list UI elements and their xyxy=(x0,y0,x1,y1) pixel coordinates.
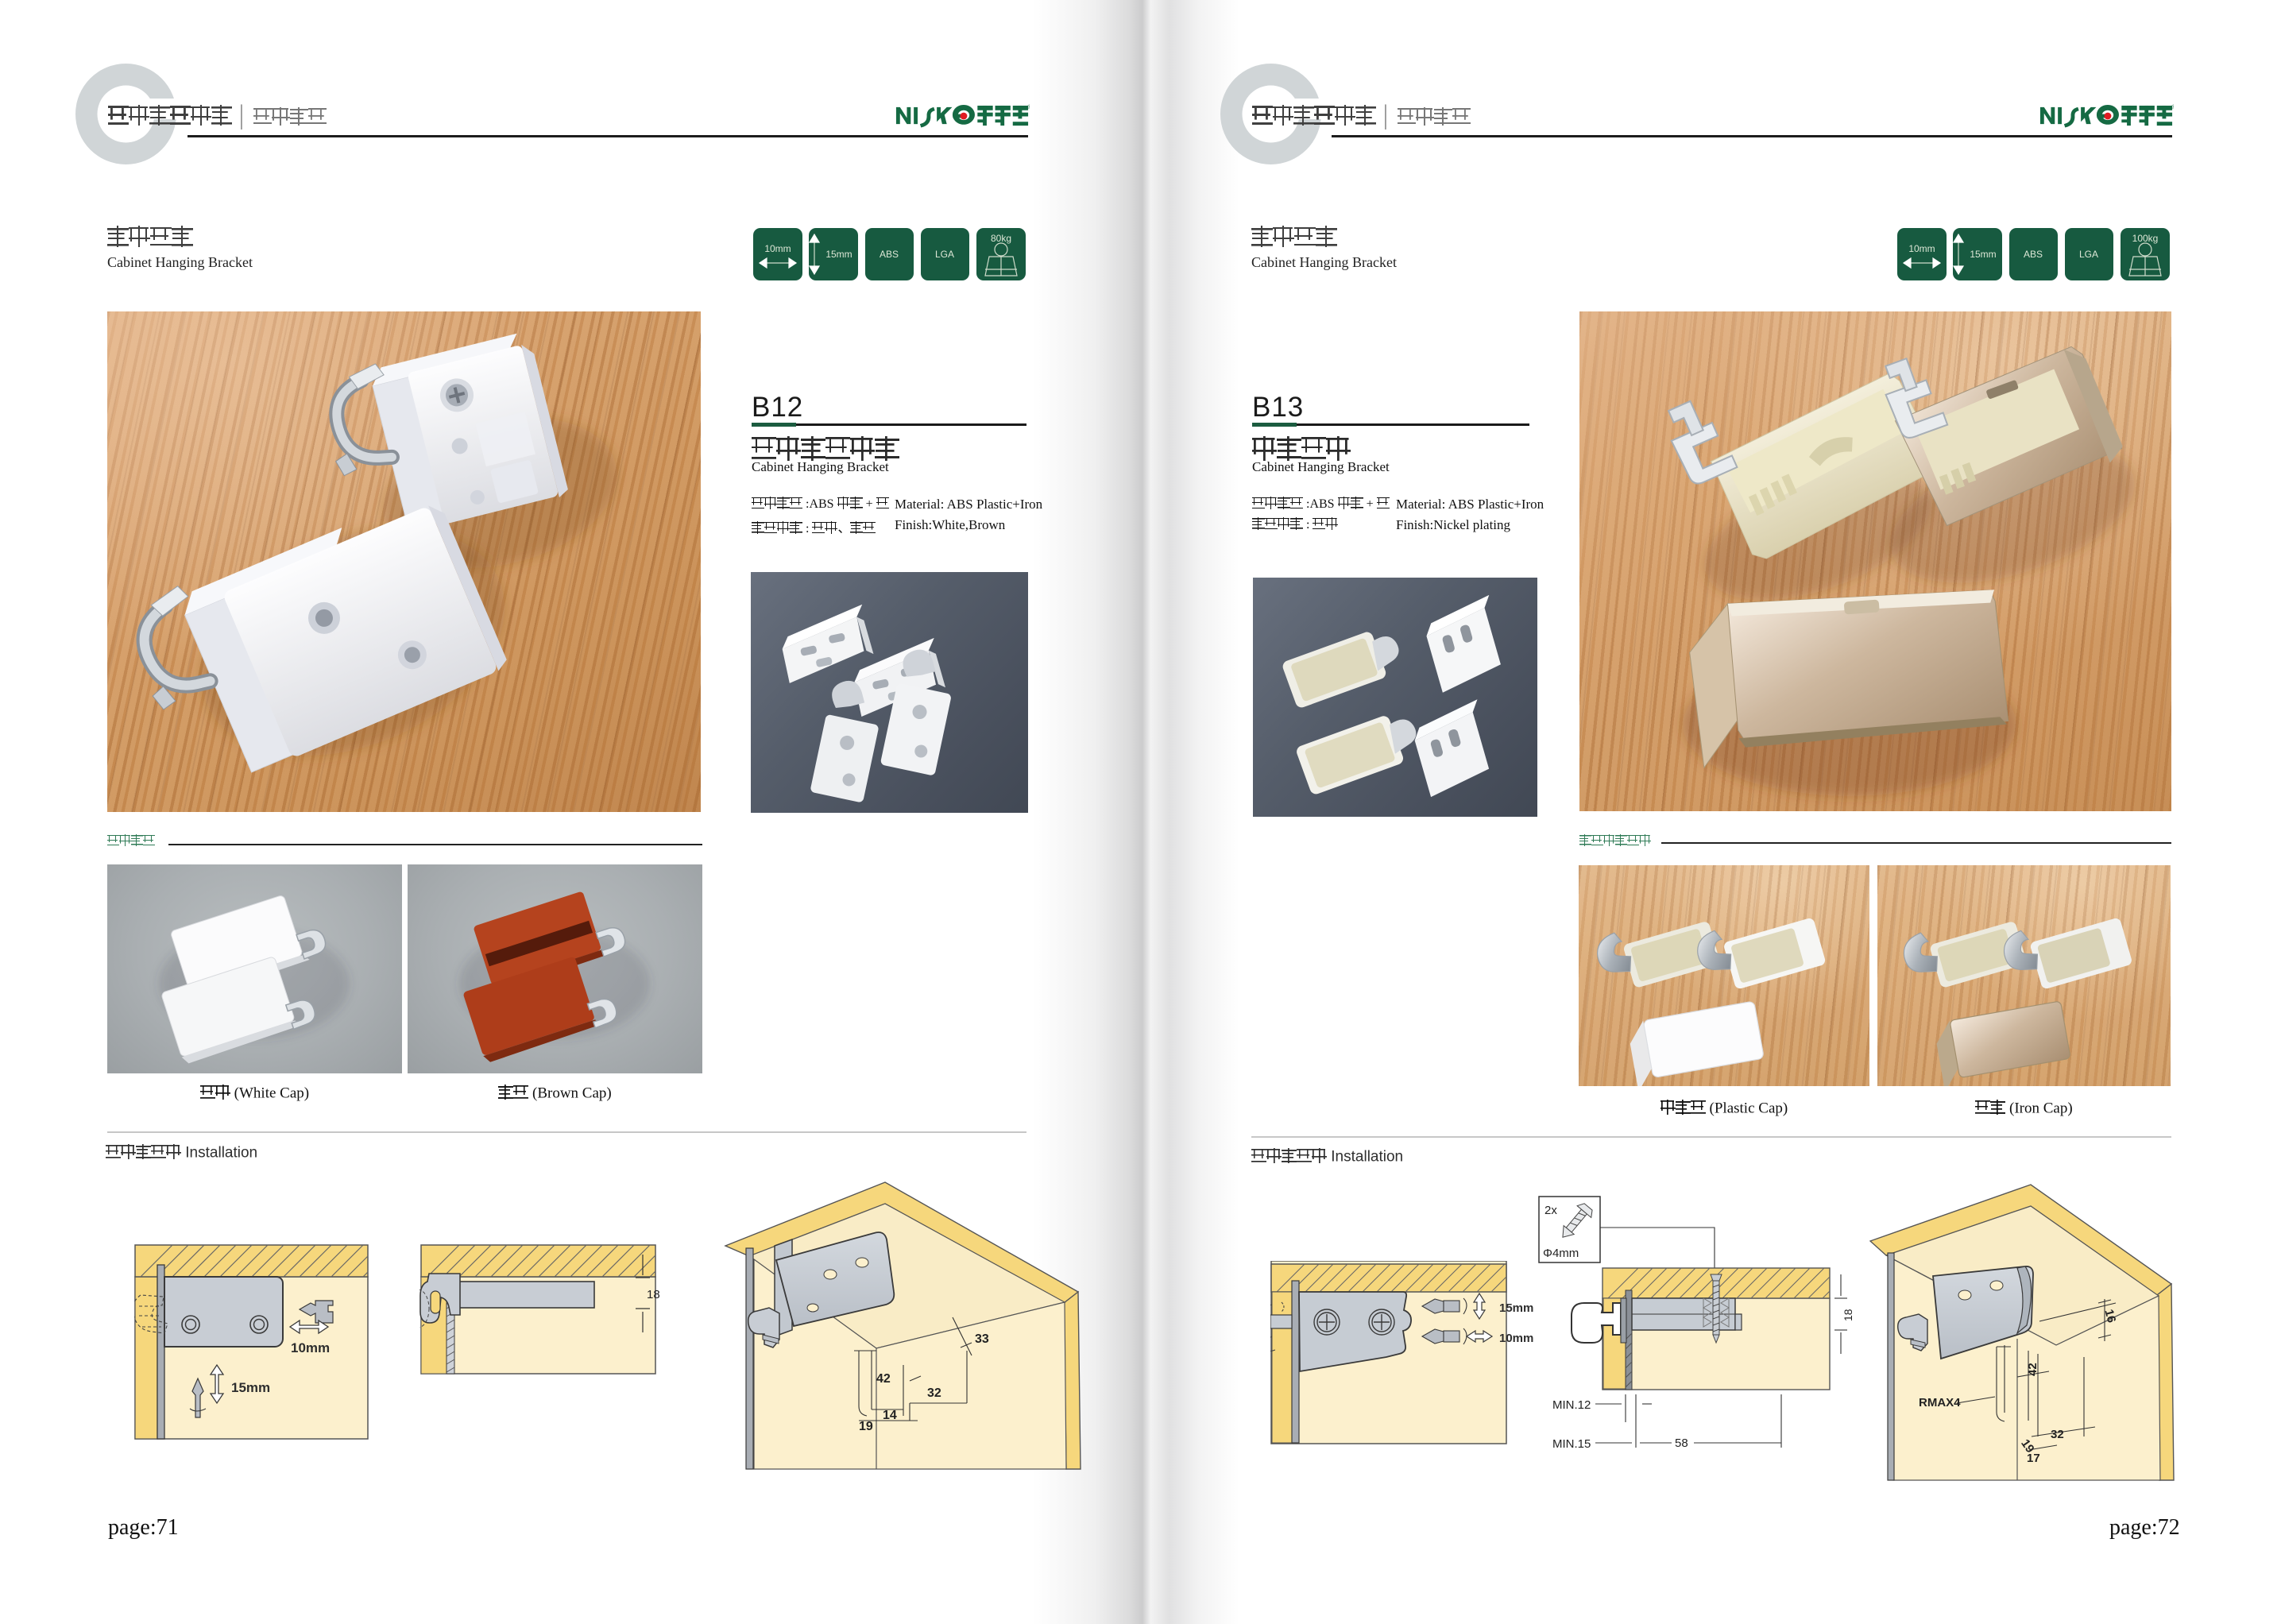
svg-text:15mm: 15mm xyxy=(825,249,852,260)
svg-text:15mm: 15mm xyxy=(1499,1301,1533,1315)
svg-text:18: 18 xyxy=(1842,1309,1854,1321)
svg-text:42: 42 xyxy=(876,1372,891,1386)
svg-text:10mm: 10mm xyxy=(1499,1332,1533,1345)
svg-text:10mm: 10mm xyxy=(291,1340,330,1355)
svg-text:15mm: 15mm xyxy=(1970,249,1996,260)
svg-text:10mm: 10mm xyxy=(1908,243,1935,254)
svg-text:2x: 2x xyxy=(1545,1204,1557,1217)
svg-text:33: 33 xyxy=(975,1332,989,1346)
svg-text:Φ4mm: Φ4mm xyxy=(1543,1247,1579,1260)
svg-text:MIN.12: MIN.12 xyxy=(1552,1398,1591,1412)
svg-text:ABS: ABS xyxy=(880,249,899,260)
svg-text:42: 42 xyxy=(2026,1363,2039,1376)
svg-text:17: 17 xyxy=(2027,1452,2040,1465)
svg-text:18: 18 xyxy=(647,1288,660,1301)
svg-text:®: ® xyxy=(2171,103,2174,110)
svg-text:100kg: 100kg xyxy=(2132,233,2159,244)
svg-text:32: 32 xyxy=(927,1386,941,1400)
svg-text:ABS: ABS xyxy=(2024,249,2043,260)
svg-text:10mm: 10mm xyxy=(764,243,791,254)
svg-text:MIN.15: MIN.15 xyxy=(1552,1437,1591,1451)
svg-text:LGA: LGA xyxy=(935,249,954,260)
svg-text:®: ® xyxy=(1027,103,1030,110)
svg-text:19: 19 xyxy=(859,1420,873,1433)
svg-text:32: 32 xyxy=(2051,1428,2064,1441)
svg-text:RMAX4: RMAX4 xyxy=(1919,1396,1961,1409)
svg-text:80kg: 80kg xyxy=(991,233,1011,244)
svg-text:15mm: 15mm xyxy=(231,1380,270,1395)
svg-text:14: 14 xyxy=(883,1409,897,1422)
svg-text:LGA: LGA xyxy=(2079,249,2098,260)
svg-text:58: 58 xyxy=(1675,1436,1688,1450)
